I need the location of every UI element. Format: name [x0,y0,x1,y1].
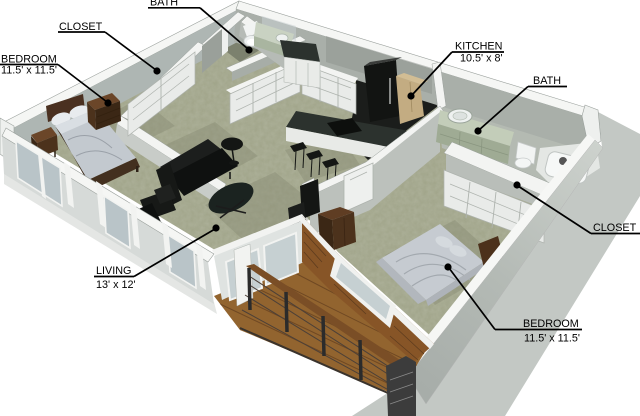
svg-text:13' x 12': 13' x 12' [96,279,136,291]
svg-text:LIVING: LIVING [96,265,131,277]
svg-text:10.5' x 8': 10.5' x 8' [460,53,503,65]
svg-text:11.5' x 11.5': 11.5' x 11.5' [524,333,580,345]
svg-text:BEDROOM: BEDROOM [523,318,579,330]
svg-text:CLOSET: CLOSET [593,222,637,234]
svg-text:KITCHEN: KITCHEN [455,41,502,53]
svg-text:BATH: BATH [533,75,561,87]
svg-text:11.5' x 11.5': 11.5' x 11.5' [1,65,57,77]
